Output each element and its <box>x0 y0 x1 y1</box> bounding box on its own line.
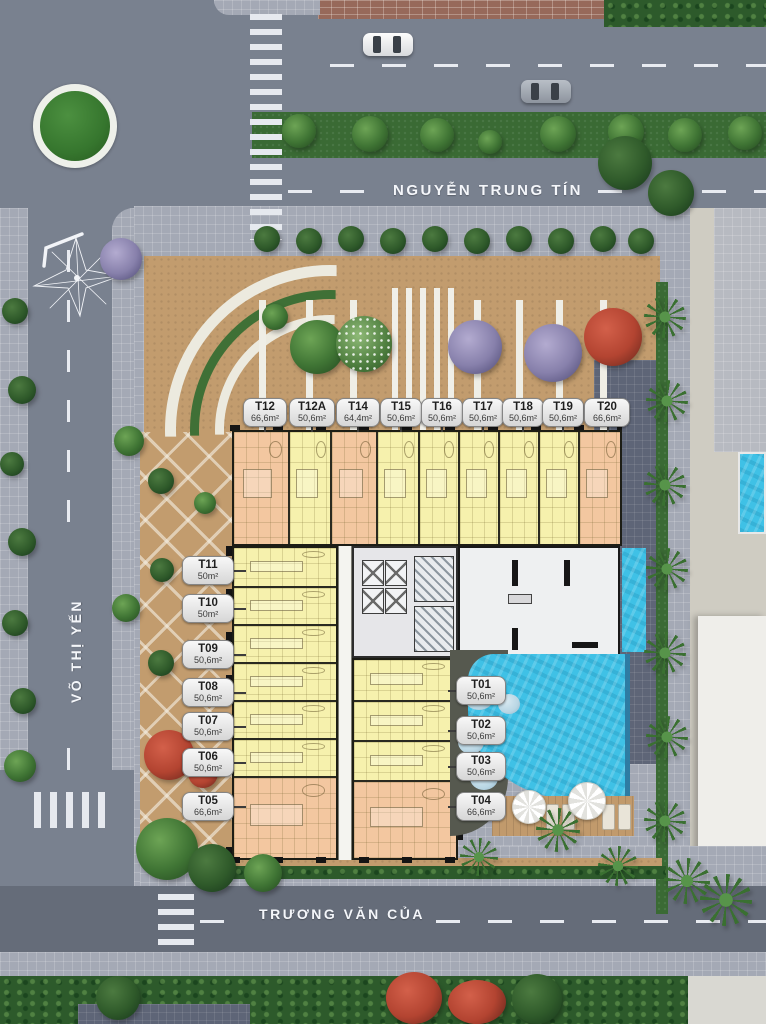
unit-callout-t12a[interactable]: T12A 50,6m² <box>289 398 335 427</box>
unit-area: 50,6m² <box>183 727 233 737</box>
unit-callout-t02[interactable]: T02 50,6m² <box>456 716 506 745</box>
bush <box>380 228 406 254</box>
wall-column <box>564 560 570 586</box>
unit-row <box>354 700 456 740</box>
palm-tree <box>460 838 498 876</box>
unit-callout-t08[interactable]: T08 50,6m² <box>182 678 234 707</box>
tree <box>282 114 316 148</box>
wall-column <box>512 560 518 586</box>
elevator-icon <box>385 560 407 586</box>
car-grey <box>521 80 571 103</box>
unit-id: T01 <box>457 679 505 691</box>
neighbor-pool <box>738 452 766 534</box>
lane-dashes-top <box>330 64 766 67</box>
tree <box>668 118 702 152</box>
unit-id: T16 <box>422 401 462 413</box>
unit-callout-t03[interactable]: T03 50,6m² <box>456 752 506 781</box>
lane-dashes-left-lower <box>67 748 70 790</box>
unit-callout-t20[interactable]: T20 66,6m² <box>584 398 630 427</box>
bush <box>254 226 280 252</box>
unit-id: T07 <box>183 715 233 727</box>
bush <box>590 226 616 252</box>
tree <box>188 844 236 892</box>
room-fixture <box>508 594 532 604</box>
unit-cell <box>376 432 418 544</box>
unit-callout-t09[interactable]: T09 50,6m² <box>182 640 234 669</box>
unit-row <box>234 586 336 624</box>
unit-row <box>234 548 336 586</box>
neighbor-building-slab <box>698 616 766 870</box>
unit-id: T02 <box>457 719 505 731</box>
unit-area: 50m² <box>183 571 233 581</box>
palm-tree <box>646 716 688 758</box>
tree <box>4 750 36 782</box>
unit-id: T12 <box>244 401 286 413</box>
roundabout-island <box>33 84 117 168</box>
wall-column <box>512 628 518 650</box>
west-wing-column-b <box>352 658 458 860</box>
tree-purple <box>448 320 502 374</box>
unit-cell <box>330 432 376 544</box>
street-name-top: NGUYỄN TRUNG TÍN <box>348 182 628 199</box>
sidewalk-corner-top <box>214 0 320 15</box>
stairs-icon <box>414 556 454 602</box>
bush <box>422 226 448 252</box>
unit-id: T17 <box>463 401 503 413</box>
callout-leader <box>234 806 246 808</box>
corridor <box>338 546 352 860</box>
tree <box>648 170 694 216</box>
unit-cell <box>288 432 330 544</box>
unit-row <box>234 738 336 776</box>
unit-area: 50,6m² <box>422 413 462 423</box>
bush <box>628 228 654 254</box>
unit-area: 50,6m² <box>183 655 233 665</box>
pool-strip <box>622 548 646 652</box>
palm-tree <box>536 808 580 852</box>
tree <box>352 116 388 152</box>
unit-cell <box>498 432 538 544</box>
tree-red <box>386 972 442 1024</box>
unit-row <box>234 624 336 662</box>
unit-id: T11 <box>183 559 233 571</box>
unit-id: T19 <box>543 401 583 413</box>
unit-id: T08 <box>183 681 233 693</box>
unit-area: 50,6m² <box>543 413 583 423</box>
unit-area: 50,6m² <box>503 413 543 423</box>
palm-tree <box>700 874 752 926</box>
tree <box>540 116 576 152</box>
tree <box>244 854 282 892</box>
unit-row <box>354 660 456 700</box>
callout-leader <box>234 726 246 728</box>
unit-id: T15 <box>381 401 421 413</box>
bottom-right-slab <box>688 976 766 1024</box>
unit-id: T04 <box>457 795 505 807</box>
callout-leader <box>234 570 246 572</box>
unit-cell <box>578 432 620 544</box>
crosswalk-bottom <box>158 894 194 946</box>
sidewalk-brick-top <box>318 0 608 19</box>
unit-cell <box>418 432 458 544</box>
callout-leader <box>234 608 246 610</box>
unit-area: 50,6m² <box>183 693 233 703</box>
elevator-icon <box>362 588 384 614</box>
unit-callout-t11[interactable]: T11 50m² <box>182 556 234 585</box>
unit-area: 50,6m² <box>457 731 505 741</box>
unit-area: 50,6m² <box>183 763 233 773</box>
elevator-icon <box>385 588 407 614</box>
palm-tree <box>646 548 688 590</box>
unit-row <box>234 700 336 738</box>
crosswalk-left <box>34 792 112 828</box>
unit-callout-t16[interactable]: T16 50,6m² <box>421 398 463 427</box>
street-name-bottom: TRƯƠNG VĂN CỦA <box>242 906 442 922</box>
elevator-icon <box>362 560 384 586</box>
tree-red <box>584 308 642 366</box>
unit-cell <box>458 432 498 544</box>
tree-purple <box>100 238 142 280</box>
unit-callout-t12[interactable]: T12 66,6m² <box>243 398 287 427</box>
tree <box>112 594 140 622</box>
north-wing <box>232 430 622 546</box>
unit-area: 50,6m² <box>463 413 503 423</box>
bush <box>0 452 24 476</box>
bush <box>338 226 364 252</box>
unit-callout-t10[interactable]: T10 50m² <box>182 594 234 623</box>
amenity-room <box>458 546 620 656</box>
callout-leader <box>234 654 246 656</box>
road-top <box>0 0 766 208</box>
unit-row <box>234 776 336 858</box>
unit-id: T03 <box>457 755 505 767</box>
bush <box>296 228 322 254</box>
bush <box>2 610 28 636</box>
unit-area: 66,6m² <box>457 807 505 817</box>
car-white <box>363 33 413 56</box>
unit-id: T14 <box>337 401 379 413</box>
unit-cell <box>538 432 578 544</box>
unit-id: T12A <box>290 401 334 413</box>
west-wing-column-a <box>232 546 338 860</box>
palm-tree <box>646 380 688 422</box>
unit-cell <box>234 432 288 544</box>
palm-tree <box>644 464 686 506</box>
sun-lounger <box>618 804 631 830</box>
unit-area: 66,6m² <box>585 413 629 423</box>
unit-row <box>354 780 456 858</box>
unit-callout-t15[interactable]: T15 50,6m² <box>380 398 422 427</box>
unit-id: T18 <box>503 401 543 413</box>
unit-id: T10 <box>183 597 233 609</box>
lane-dashes-bottom-left <box>200 920 234 923</box>
bush <box>506 226 532 252</box>
unit-callout-t07[interactable]: T07 50,6m² <box>182 712 234 741</box>
bush <box>8 376 36 404</box>
neighbor-pavers-right <box>714 208 766 452</box>
tree <box>96 976 140 1020</box>
building-core <box>352 546 458 658</box>
street-name-left: VÕ THỊ YẾN <box>68 556 84 746</box>
tree-purple <box>524 324 582 382</box>
unit-area: 64,4m² <box>337 413 379 423</box>
tree <box>728 116 762 150</box>
tree <box>114 426 144 456</box>
unit-row <box>234 662 336 700</box>
tree <box>420 118 454 152</box>
unit-area: 66,6m² <box>244 413 286 423</box>
palm-tree <box>644 800 686 842</box>
palm-tree <box>598 846 638 886</box>
tree-red <box>448 980 506 1024</box>
sidewalk-bottom-lower <box>0 952 766 978</box>
wall-column <box>572 642 598 648</box>
palm-tree <box>644 632 686 674</box>
unit-callout-t05[interactable]: T05 66,6m² <box>182 792 234 821</box>
bush <box>464 228 490 254</box>
unit-callout-t14[interactable]: T14 64,4m² <box>336 398 380 427</box>
unit-callout-t19[interactable]: T19 50,6m² <box>542 398 584 427</box>
unit-area: 50,6m² <box>381 413 421 423</box>
unit-area: 50,6m² <box>457 691 505 701</box>
unit-id: T09 <box>183 643 233 655</box>
bush <box>8 528 36 556</box>
tree <box>598 136 652 190</box>
callout-leader <box>234 762 246 764</box>
tree-flowering <box>336 316 392 372</box>
unit-area: 50m² <box>183 609 233 619</box>
tree <box>478 130 502 154</box>
callout-leader <box>234 692 246 694</box>
unit-callout-t06[interactable]: T06 50,6m² <box>182 748 234 777</box>
unit-area: 66,6m² <box>183 807 233 817</box>
bush <box>148 468 174 494</box>
tree <box>512 974 562 1024</box>
unit-callout-t18[interactable]: T18 50,6m² <box>502 398 544 427</box>
unit-id: T20 <box>585 401 629 413</box>
tree <box>262 304 288 330</box>
bush <box>10 688 36 714</box>
unit-id: T05 <box>183 795 233 807</box>
crosswalk-top <box>250 14 282 240</box>
unit-callout-t04[interactable]: T04 66,6m² <box>456 792 506 821</box>
unit-area: 50,6m² <box>290 413 334 423</box>
bush <box>2 298 28 324</box>
unit-callout-t17[interactable]: T17 50,6m² <box>462 398 504 427</box>
unit-area: 50,6m² <box>457 767 505 777</box>
hedge-top-right <box>604 0 766 27</box>
unit-row <box>354 740 456 780</box>
bush <box>148 650 174 676</box>
stairs-icon <box>414 606 454 652</box>
palm-tree <box>644 296 686 338</box>
site-plan-canvas: NGUYỄN TRUNG TÍN VÕ THỊ YẾN TRƯƠNG VĂN C… <box>0 0 766 1024</box>
unit-callout-t01[interactable]: T01 50,6m² <box>456 676 506 705</box>
bush <box>548 228 574 254</box>
bush <box>194 492 216 514</box>
unit-id: T06 <box>183 751 233 763</box>
bush <box>150 558 174 582</box>
